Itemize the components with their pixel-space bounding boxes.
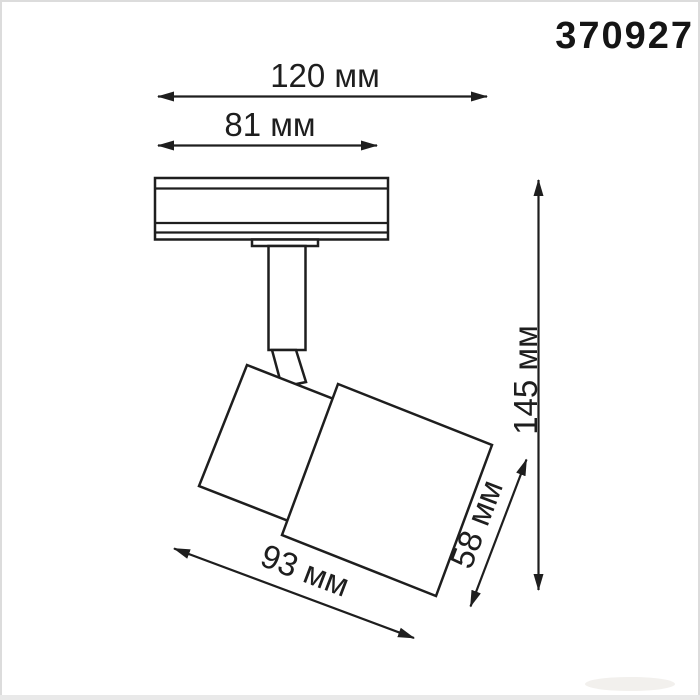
- dimension-label-overall-width: 120 мм: [270, 57, 380, 94]
- drawing-canvas: 370927 120 мм 81 мм: [0, 0, 700, 700]
- photo-frame-border: [1, 1, 699, 699]
- article-number: 370927: [555, 15, 694, 57]
- dimension-base-width: 81 мм: [158, 106, 377, 146]
- photo-bottom-edge: [0, 695, 700, 700]
- track-adapter-body: [155, 178, 388, 240]
- track-adapter: [155, 178, 388, 246]
- dimension-overall-height: 145 мм: [507, 180, 544, 590]
- watermark-smudge: [585, 677, 675, 691]
- dimension-overall-width: 120 мм: [158, 57, 487, 97]
- dimension-label-base-width: 81 мм: [224, 106, 315, 143]
- product-dimension-drawing: 370927 120 мм 81 мм: [0, 0, 700, 700]
- stem: [269, 246, 306, 350]
